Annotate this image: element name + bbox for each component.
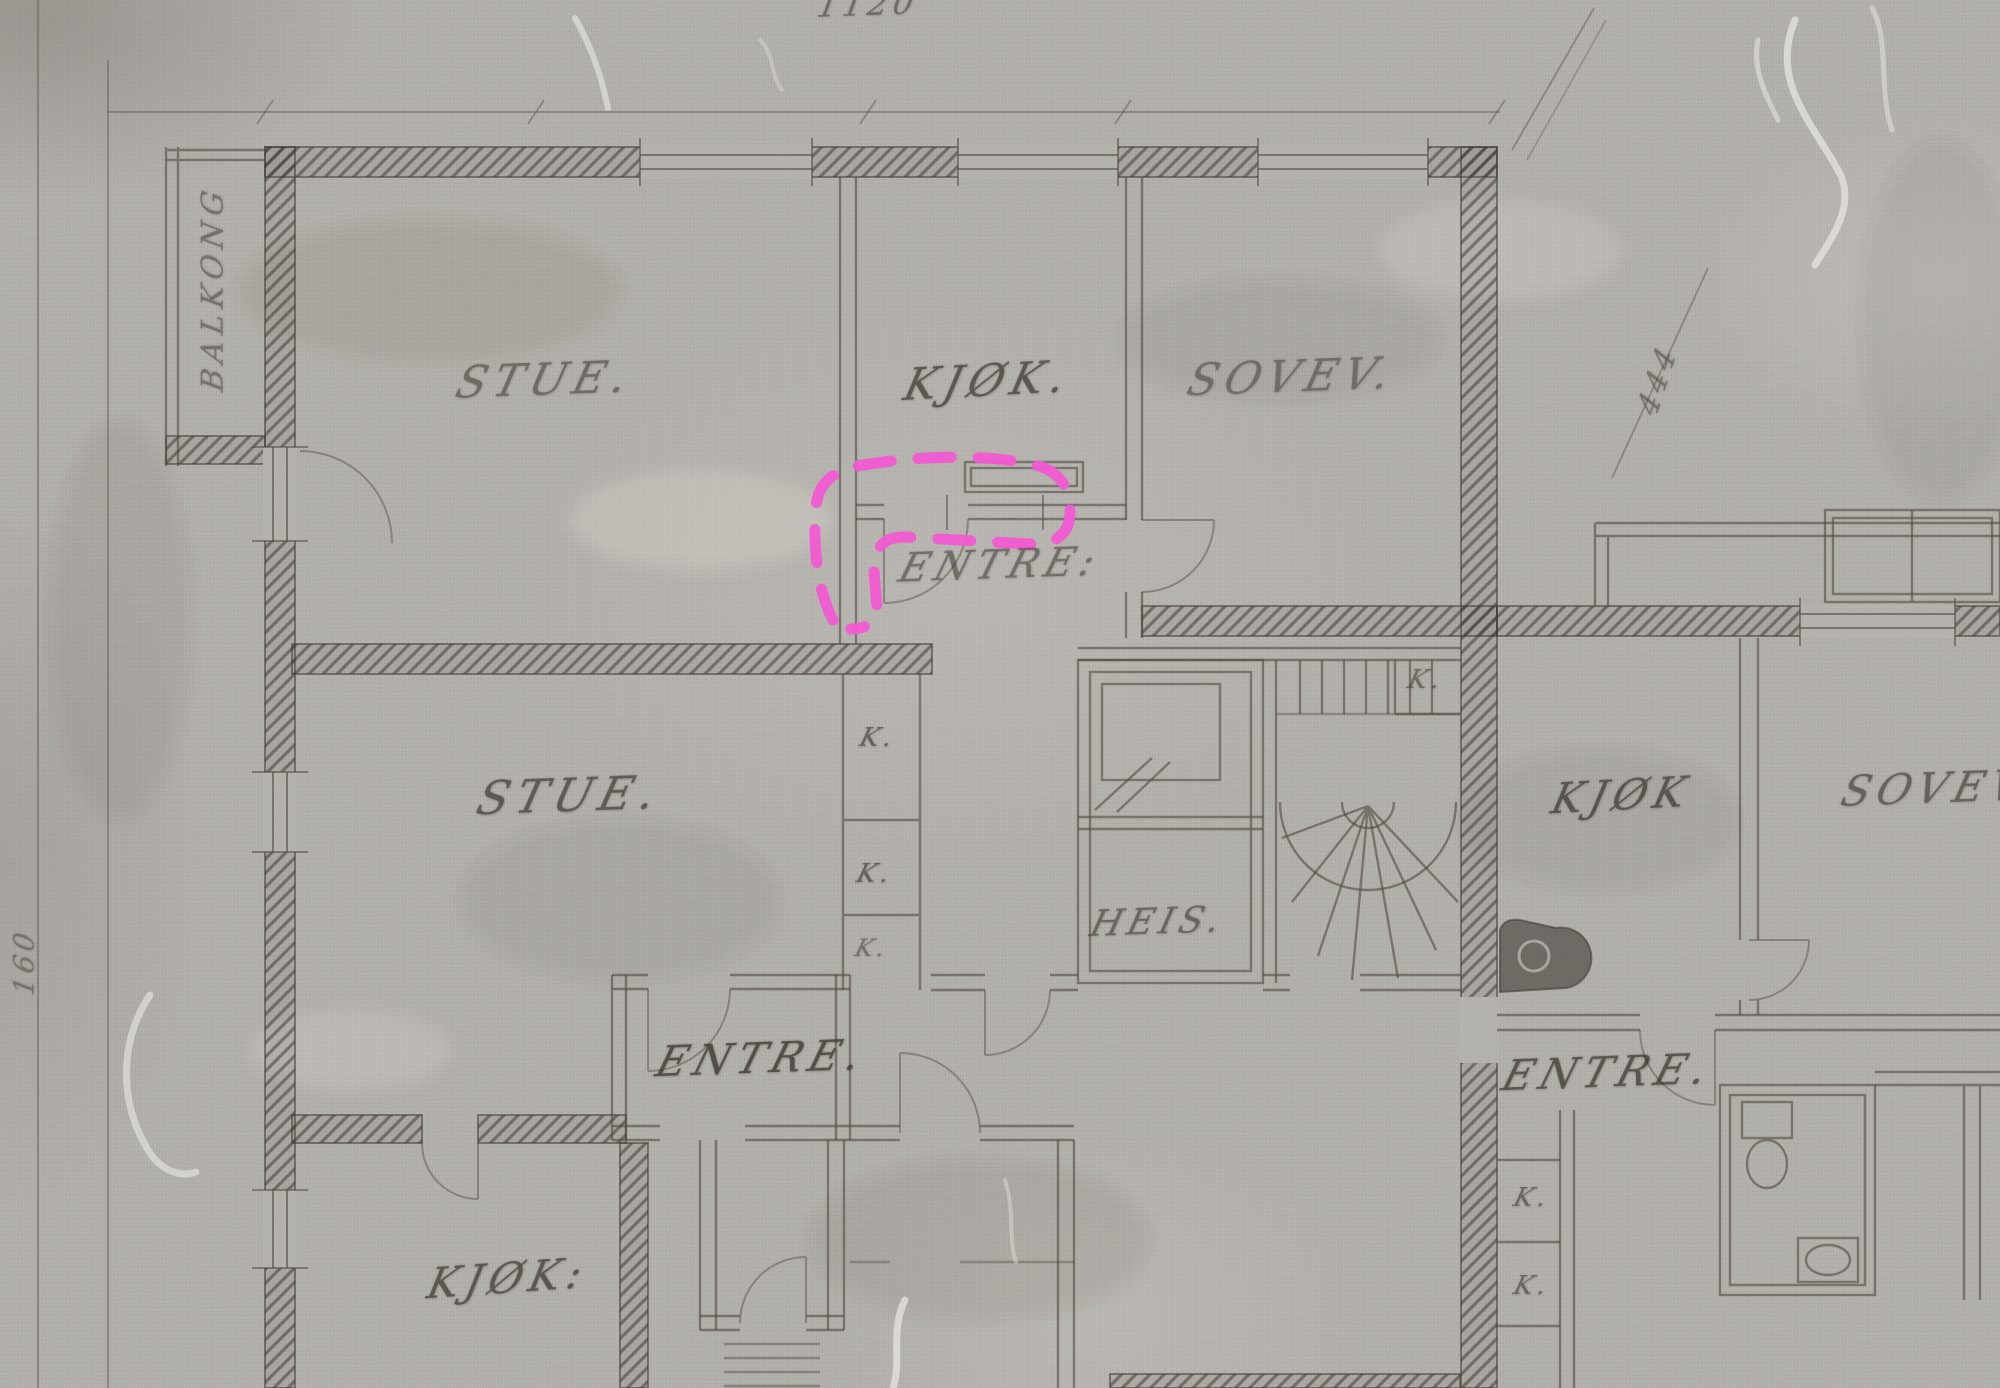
closet-label-k2: K.: [854, 859, 897, 889]
room-label-stue-left: STUE.: [471, 765, 668, 826]
room-label-entre-top: ENTRE:: [894, 538, 1107, 591]
room-label-kjok-top: KJØK.: [899, 351, 1077, 411]
room-label-entre-left: ENTRE.: [651, 1030, 874, 1087]
closet-label-k1: K.: [857, 723, 900, 753]
room-label-sovev-right: SOVEV: [1836, 760, 2000, 816]
room-label-sovev-top: SOVEV.: [1182, 348, 1402, 407]
closet-label-k-right1: K.: [1511, 1183, 1554, 1213]
room-label-entre-right: ENTRE.: [1497, 1044, 1720, 1101]
closet-label-k3: K.: [852, 934, 892, 962]
room-label-balkong: BALKONG: [196, 182, 231, 394]
room-label-heis: HEIS.: [1086, 899, 1230, 945]
dimension-left-vertical: 160: [8, 926, 41, 998]
closet-label-k-right2: K.: [1511, 1271, 1554, 1301]
room-label-kjok-right: KJØK: [1547, 767, 1698, 824]
paper-grain: [0, 0, 2000, 1388]
room-label-stue-top: STUE.: [451, 351, 639, 409]
closet-label-k-stairs: K.: [1405, 665, 1448, 695]
floor-plan-drawing: [0, 0, 2000, 1388]
dimension-top: 1120: [814, 0, 921, 25]
floor-plan-scan: BALKONG 1120 444 160 STUE. KJØK. SOVEV. …: [0, 0, 2000, 1388]
